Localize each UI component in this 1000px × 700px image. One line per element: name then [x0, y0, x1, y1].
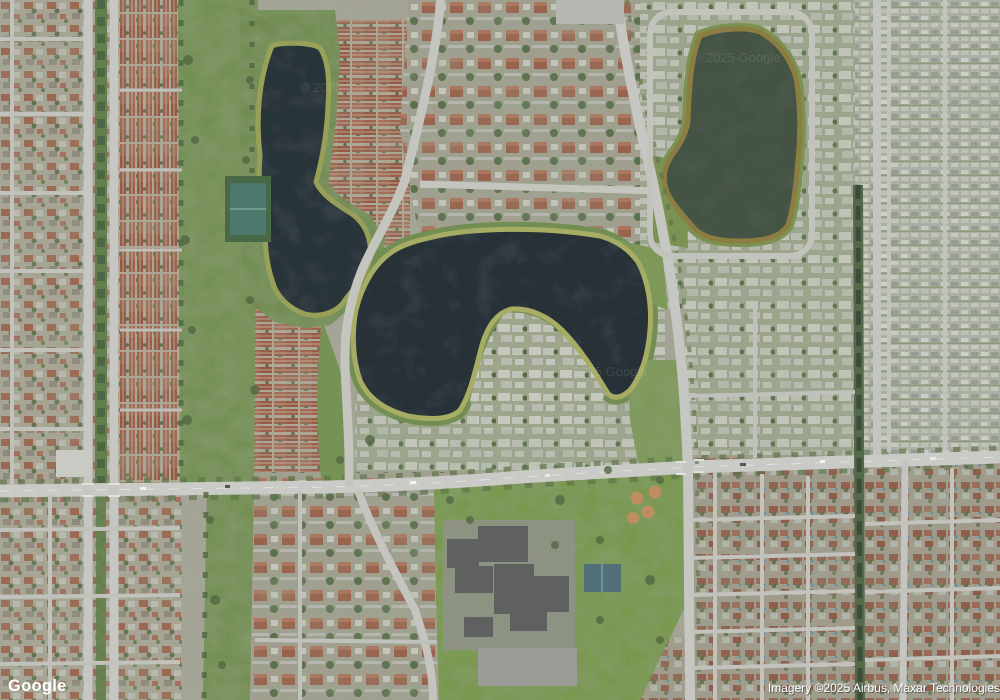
- svg-text:2025 Google: 2025 Google: [706, 50, 780, 65]
- svg-text:Imagery ©2025 Airbus, Maxar Te: Imagery ©2025 Airbus, Maxar Technologies: [768, 681, 1000, 695]
- svg-text:Google: Google: [8, 677, 67, 695]
- svg-text:© 2025 Google: © 2025 Google: [300, 80, 388, 95]
- svg-text:© 2025 Google: © 2025 Google: [560, 364, 648, 379]
